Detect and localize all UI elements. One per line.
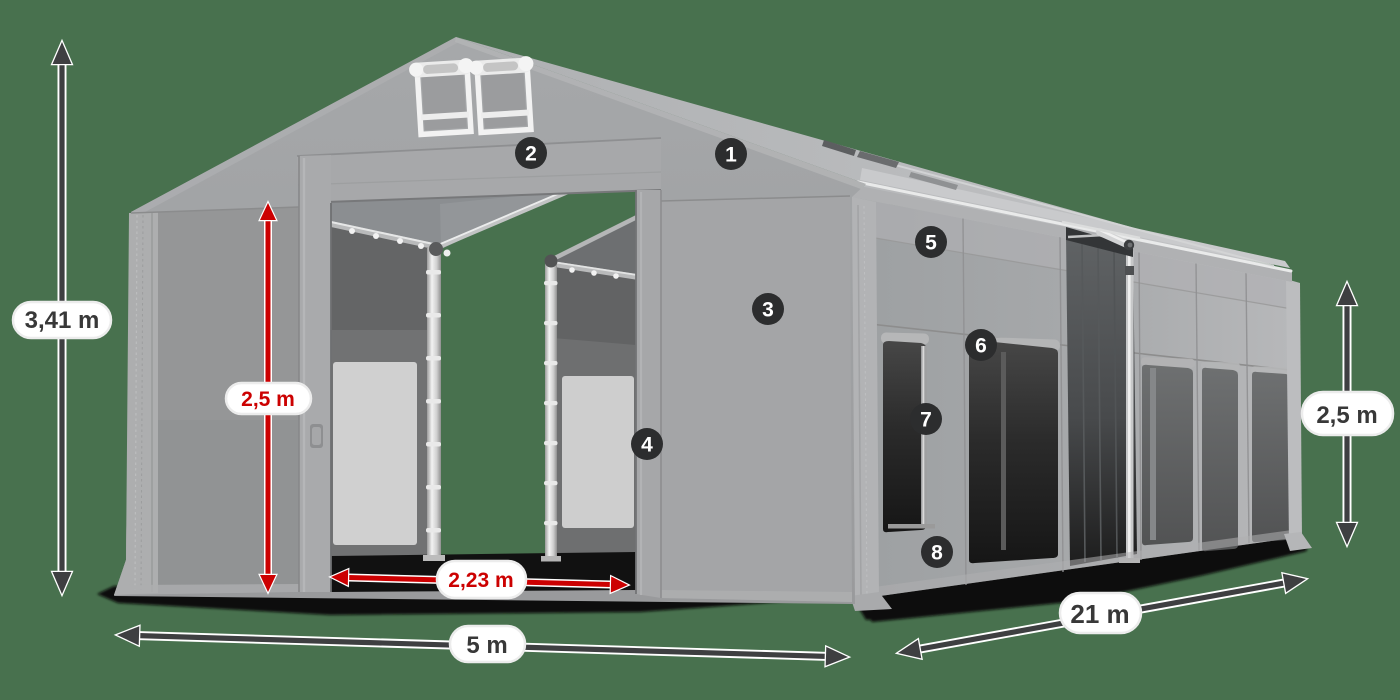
- svg-text:2,5 m: 2,5 m: [1316, 402, 1377, 429]
- svg-text:21 m: 21 m: [1070, 599, 1129, 629]
- svg-text:1: 1: [725, 144, 737, 167]
- svg-text:3: 3: [762, 299, 774, 322]
- svg-text:2,23 m: 2,23 m: [448, 569, 513, 592]
- svg-text:7: 7: [920, 409, 932, 432]
- svg-text:4: 4: [641, 434, 653, 457]
- svg-text:5: 5: [925, 232, 937, 255]
- svg-text:8: 8: [931, 542, 943, 565]
- svg-text:2,5 m: 2,5 m: [241, 388, 295, 411]
- svg-text:3,41 m: 3,41 m: [25, 307, 100, 334]
- svg-text:6: 6: [975, 335, 987, 358]
- svg-text:2: 2: [525, 143, 537, 166]
- svg-text:5 m: 5 m: [466, 632, 507, 659]
